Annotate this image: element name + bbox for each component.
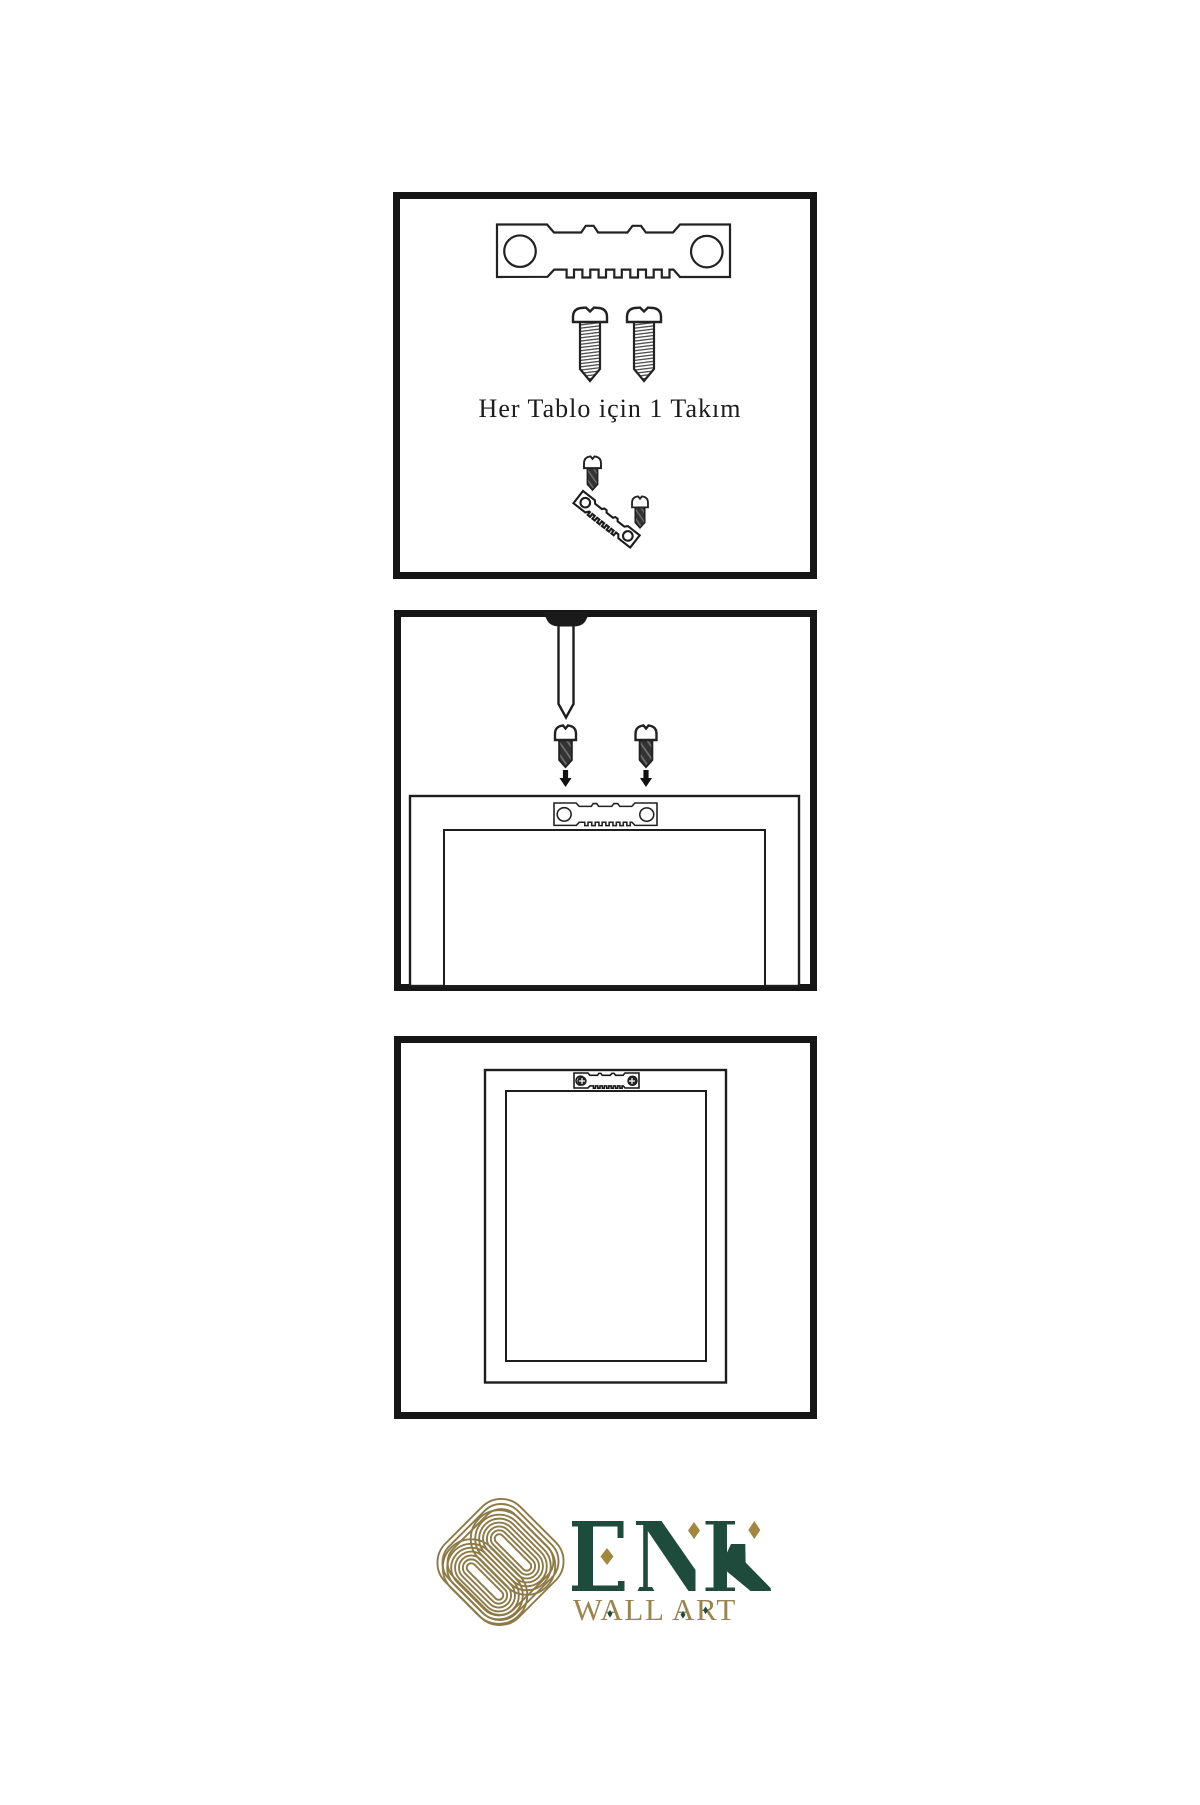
svg-text:WALL ART: WALL ART [573, 1592, 737, 1627]
svg-text:Her Tablo için 1 Takım: Her Tablo için 1 Takım [479, 394, 742, 423]
